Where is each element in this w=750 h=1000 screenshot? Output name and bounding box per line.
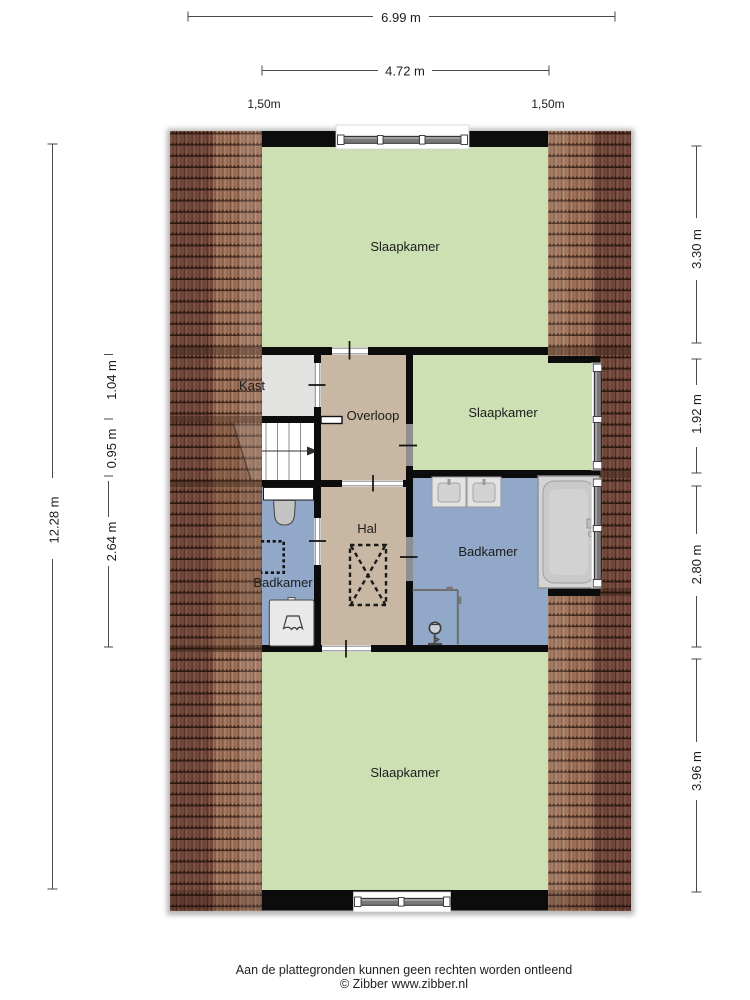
svg-text:Hal: Hal [357, 521, 377, 536]
svg-text:Slaapkamer: Slaapkamer [370, 239, 440, 254]
svg-text:2.80 m: 2.80 m [689, 545, 704, 585]
svg-text:1.04 m: 1.04 m [104, 360, 119, 400]
svg-text:Slaapkamer: Slaapkamer [370, 765, 440, 780]
svg-text:0.95 m: 0.95 m [104, 429, 119, 469]
svg-text:Kast: Kast [239, 378, 265, 393]
svg-text:1,50m: 1,50m [247, 97, 280, 111]
svg-text:Aan de plattegronden kunnen ge: Aan de plattegronden kunnen geen rechten… [236, 963, 572, 977]
svg-text:Badkamer: Badkamer [253, 575, 313, 590]
svg-text:1,50m: 1,50m [531, 97, 564, 111]
svg-text:12.28 m: 12.28 m [47, 497, 62, 544]
svg-text:6.99 m: 6.99 m [381, 10, 421, 25]
svg-text:4.72 m: 4.72 m [385, 64, 425, 79]
svg-text:3.96 m: 3.96 m [689, 751, 704, 791]
svg-text:1.92 m: 1.92 m [689, 394, 704, 434]
svg-text:Slaapkamer: Slaapkamer [468, 405, 538, 420]
svg-text:Overloop: Overloop [347, 408, 400, 423]
svg-text:3.30 m: 3.30 m [689, 229, 704, 269]
svg-text:Badkamer: Badkamer [458, 544, 518, 559]
svg-text:© Zibber www.zibber.nl: © Zibber www.zibber.nl [340, 977, 468, 991]
svg-text:2.64 m: 2.64 m [104, 522, 119, 562]
